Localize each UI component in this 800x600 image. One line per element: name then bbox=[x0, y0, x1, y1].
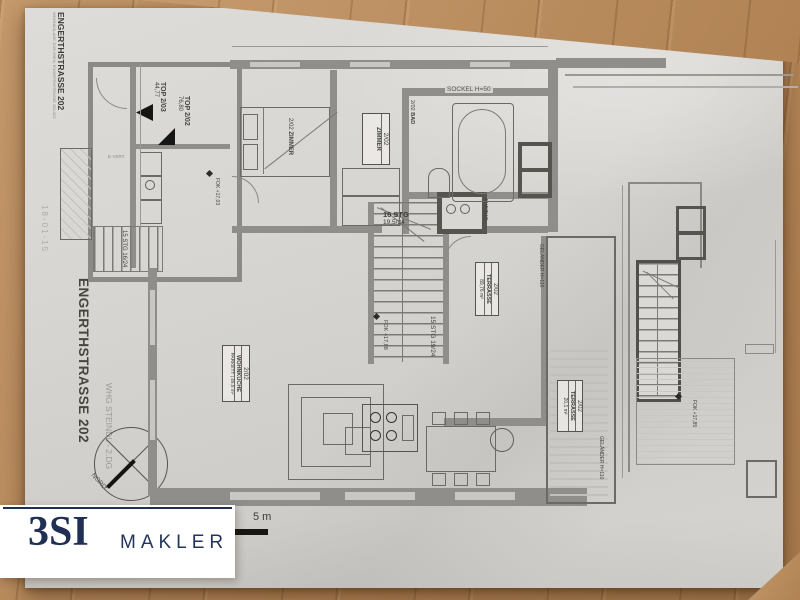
date-stamp: 18-01-15 bbox=[38, 205, 48, 265]
room-number: 2/02 bbox=[382, 114, 389, 164]
room-name: ZIMMER bbox=[287, 131, 293, 155]
chair bbox=[476, 412, 490, 425]
annex-stair-label: 15 STG 16/24 bbox=[118, 230, 127, 274]
kitchenette-fixture bbox=[140, 152, 162, 176]
corner-title-block: ENGERTHSTRASSE 202 WOHNANLAGE 1020 WIEN,… bbox=[43, 12, 65, 150]
window-segment bbox=[150, 290, 155, 345]
room-number: 2/02 bbox=[492, 263, 498, 315]
elevator-label: AUFZUG bbox=[478, 198, 487, 232]
wall bbox=[556, 58, 666, 68]
room-area: 20,1 m² bbox=[562, 381, 569, 431]
compass-needle bbox=[106, 459, 136, 489]
kitchen-island bbox=[362, 404, 418, 452]
scale-label: 5 m bbox=[253, 511, 271, 523]
annex-stair-treads bbox=[93, 226, 163, 272]
room-area: 45,5 m² bbox=[229, 378, 234, 394]
kitchen-label-box: 2/02 WOHNKÜCHE PARKETT | 45,5 m² bbox=[222, 345, 250, 402]
pillow bbox=[243, 144, 258, 170]
chair bbox=[432, 412, 446, 425]
annex-level-label: FOK +17,03 bbox=[210, 178, 219, 218]
logo-word-text: MAKLER bbox=[120, 532, 228, 554]
roof-outline-line bbox=[573, 86, 798, 88]
wardrobe bbox=[342, 196, 400, 226]
room-name: ZIMMER bbox=[375, 114, 382, 164]
terrace2-label-box: 2/02 TERRASSE 20,1 m² bbox=[557, 380, 583, 432]
chair bbox=[432, 473, 446, 486]
small-note-box bbox=[745, 344, 774, 354]
floor-type: PARKETT bbox=[229, 353, 234, 375]
logo-brand-text: 3SI bbox=[28, 508, 89, 556]
wall bbox=[330, 70, 337, 230]
detail-outline-line bbox=[628, 182, 630, 472]
kitchenette-fixture bbox=[140, 200, 162, 224]
bedroom1-label: 2/02 ZIMMER bbox=[281, 118, 293, 170]
burner bbox=[386, 430, 397, 441]
sockel-label: SOCKEL H=50 bbox=[445, 86, 493, 93]
chair bbox=[454, 473, 468, 486]
agency-logo-box: 3SI MAKLER bbox=[0, 505, 235, 578]
detail-shaft-block bbox=[676, 206, 706, 234]
room-name: TERRASSE bbox=[485, 263, 492, 315]
room-area: 89,76 m² bbox=[478, 263, 485, 315]
evert-label: E-VERT. bbox=[108, 154, 125, 159]
sheet-main-title: ENGERTHSTRASSE 202 bbox=[70, 278, 90, 438]
unit-area: 44,77 bbox=[152, 82, 158, 130]
unit-label-top202: TOP 2/02 76,80 bbox=[173, 96, 190, 146]
dimension-line bbox=[232, 46, 548, 47]
dining-table bbox=[426, 426, 496, 472]
balcony-hatched bbox=[60, 148, 92, 240]
room-name: BAD bbox=[409, 112, 415, 124]
burner bbox=[370, 430, 381, 441]
detail-outline-line bbox=[628, 182, 700, 184]
room-name: TERRASSE bbox=[569, 381, 576, 431]
burner bbox=[386, 412, 397, 423]
winder-line bbox=[646, 272, 674, 300]
room-number: 2/02 bbox=[409, 100, 415, 111]
detail-shaft-block bbox=[676, 232, 706, 260]
sink-circle bbox=[145, 180, 155, 190]
room-name: WOHNKÜCHE bbox=[235, 346, 242, 401]
scale-bar bbox=[230, 529, 268, 535]
dimension-line bbox=[775, 240, 776, 353]
blanket-diagonal bbox=[264, 112, 337, 169]
shower-niche bbox=[428, 168, 450, 198]
railing-label-bottom: GELÄNDER H=110 bbox=[594, 436, 603, 488]
corner-title: ENGERTHSTRASSE 202 bbox=[56, 12, 65, 150]
chair bbox=[476, 473, 490, 486]
window-segment bbox=[350, 62, 390, 67]
window-segment bbox=[230, 492, 320, 500]
burner bbox=[370, 412, 381, 423]
unit-name: TOP 2/03 bbox=[159, 82, 166, 130]
bathtub bbox=[452, 103, 514, 202]
terrace1-label-box: 2/02 TERRASSE 89,76 m² bbox=[475, 262, 499, 316]
window-segment bbox=[470, 62, 510, 67]
stair-center-line bbox=[402, 204, 403, 362]
blanket-line bbox=[263, 108, 264, 174]
bath-room-label: 2/02 BAD bbox=[402, 100, 414, 150]
unit-label-top203: TOP 2/03 44,77 bbox=[149, 82, 166, 130]
chimney-block bbox=[518, 168, 552, 198]
unit-name: TOP 2/02 bbox=[183, 96, 190, 146]
elevator-symbol bbox=[446, 204, 456, 214]
unit-area: 76,80 bbox=[176, 96, 182, 146]
window-segment bbox=[150, 380, 155, 440]
room-number: 2/02 bbox=[576, 381, 582, 431]
window-segment bbox=[455, 492, 515, 500]
window-segment bbox=[250, 62, 300, 67]
round-table bbox=[490, 428, 514, 452]
roof-outline-line bbox=[565, 74, 793, 76]
pillow bbox=[243, 114, 258, 140]
bathtub-inner bbox=[458, 109, 506, 194]
room-number: 2/02 bbox=[242, 346, 249, 401]
elevator-symbol bbox=[460, 204, 470, 214]
wall bbox=[232, 226, 382, 233]
chair bbox=[454, 412, 468, 425]
dimension-line bbox=[622, 185, 623, 478]
room-number: 2/02 bbox=[287, 118, 293, 130]
window-segment bbox=[345, 492, 415, 500]
corner-subtitle: WOHNANLAGE 1020 WIEN, ENGERTHSTRASSE 200… bbox=[52, 12, 56, 150]
wardrobe bbox=[342, 168, 400, 196]
stair-down-label: 15 STG 19/24 bbox=[423, 316, 435, 364]
small-detail-box bbox=[746, 460, 777, 498]
plan-sheet: ENGERTHSTRASSE 202 WOHNANLAGE 1020 WIEN,… bbox=[25, 8, 783, 588]
photo-of-floor-plan: ENGERTHSTRASSE 202 WOHNANLAGE 1020 WIEN,… bbox=[0, 0, 800, 600]
railing-label-top: GELÄNDER H=110 bbox=[534, 244, 543, 296]
sink-rect bbox=[402, 415, 414, 441]
dimension-line bbox=[140, 64, 141, 230]
roof-level-label: FOK +17,85 bbox=[686, 400, 696, 440]
main-level-label: FOK +17,88 bbox=[377, 320, 387, 364]
bedroom2-label-box: 2/02 ZIMMER bbox=[362, 113, 390, 165]
